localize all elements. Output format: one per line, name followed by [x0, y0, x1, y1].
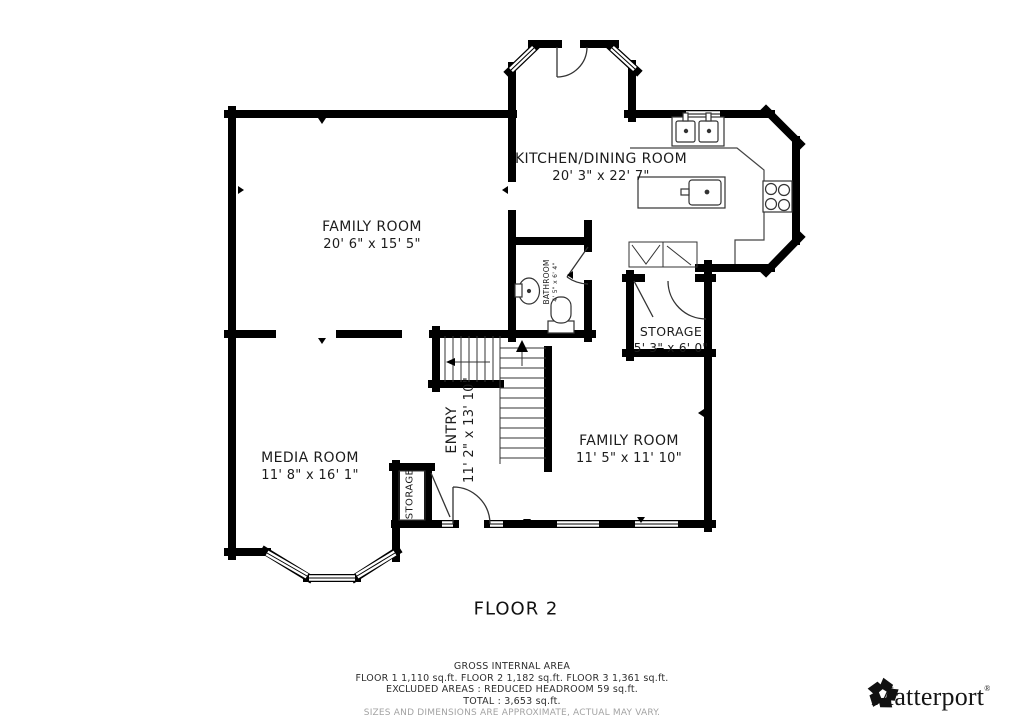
floor-plan: KITCHEN/DINING ROOM 20' 3" x 22' 7" FAMI… [0, 0, 1024, 723]
bathroom-sink-icon [515, 278, 540, 304]
registered-trademark-symbol: ® [984, 684, 990, 693]
matterport-branding: Matterport® [865, 676, 1015, 718]
room-dims: 5' 3" x 6' 0" [634, 340, 708, 356]
room-name: ENTRY [443, 377, 461, 483]
room-dims: 11' 8" x 16' 1" [261, 468, 359, 485]
room-dims: 11' 2" x 13' 10" [462, 377, 479, 483]
room-label-entry: ENTRY 11' 2" x 13' 10" [443, 377, 479, 483]
room-label-family-room-1: FAMILY ROOM 20' 6" x 15' 5" [322, 218, 422, 254]
disclaimer-text: SIZES AND DIMENSIONS ARE APPROXIMATE, AC… [355, 708, 668, 720]
nook-door-arc [557, 47, 587, 77]
room-name: FAMILY ROOM [576, 432, 682, 450]
bathroom-door [567, 247, 588, 284]
floor-areas-line: FLOOR 1 1,110 sq.ft. FLOOR 2 1,182 sq.ft… [355, 673, 668, 685]
kitchen-sink-icon [672, 113, 724, 146]
total-area-line: TOTAL : 3,653 sq.ft. [355, 696, 668, 708]
room-label-entry-storage: STORAGE [403, 469, 416, 519]
room-label-storage: STORAGE 5' 3" x 6' 0" [634, 324, 708, 356]
area-summary: GROSS INTERNAL AREA FLOOR 1 1,110 sq.ft.… [355, 661, 668, 720]
room-name: FAMILY ROOM [322, 218, 422, 236]
room-label-family-room-2: FAMILY ROOM 11' 5" x 11' 10" [576, 432, 682, 468]
storage-door-left [634, 281, 653, 317]
windows [265, 46, 722, 578]
matterport-logo-icon [865, 676, 901, 712]
floor-title: FLOOR 2 [474, 599, 559, 620]
room-label-media-room: MEDIA ROOM 11' 8" x 16' 1" [261, 449, 359, 485]
room-name: MEDIA ROOM [261, 449, 359, 467]
room-name: STORAGE [403, 469, 416, 519]
room-dims: 20' 6" x 15' 5" [322, 237, 422, 254]
front-door-arc [453, 487, 490, 524]
room-name: STORAGE [634, 324, 708, 341]
excluded-areas-line: EXCLUDED AREAS : REDUCED HEADROOM 59 sq.… [355, 684, 668, 696]
pantry-closet-icon [629, 242, 697, 267]
gross-internal-area-label: GROSS INTERNAL AREA [355, 661, 668, 673]
room-dims: 11' 5" x 11' 10" [576, 451, 682, 468]
storage-door-arc [668, 281, 706, 319]
room-label-kitchen: KITCHEN/DINING ROOM 20' 3" x 22' 7" [515, 150, 687, 186]
room-name: KITCHEN/DINING ROOM [515, 150, 687, 168]
room-name: BATHROOM [542, 259, 552, 304]
stove-icon [763, 181, 792, 212]
room-label-bathroom: BATHROOM 4' 5" x 6' 4" [542, 259, 560, 304]
room-dims: 20' 3" x 22' 7" [515, 169, 687, 186]
room-dims: 4' 5" x 6' 4" [552, 259, 560, 304]
